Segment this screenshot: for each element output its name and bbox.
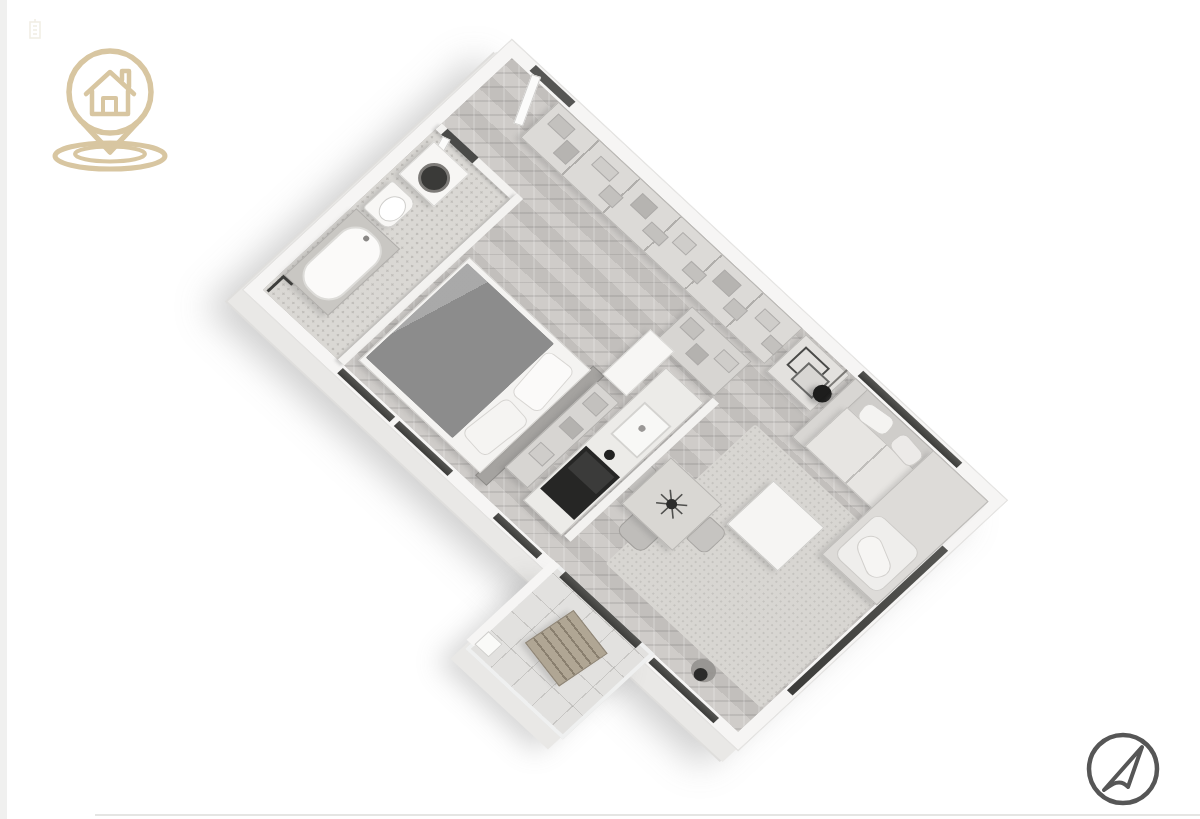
house-location-pin-icon <box>38 30 183 175</box>
page-left-strip <box>0 0 7 819</box>
real-estate-listing-image: { "page": { "background": "#ffffff", "le… <box>0 0 1200 819</box>
compass-button[interactable] <box>1082 728 1164 810</box>
sink-drain <box>637 424 647 433</box>
page-bottom-rule <box>95 814 1200 816</box>
faucet-knob <box>602 448 618 462</box>
table-centerpiece <box>646 480 697 527</box>
floor-plan-render <box>243 40 1007 750</box>
